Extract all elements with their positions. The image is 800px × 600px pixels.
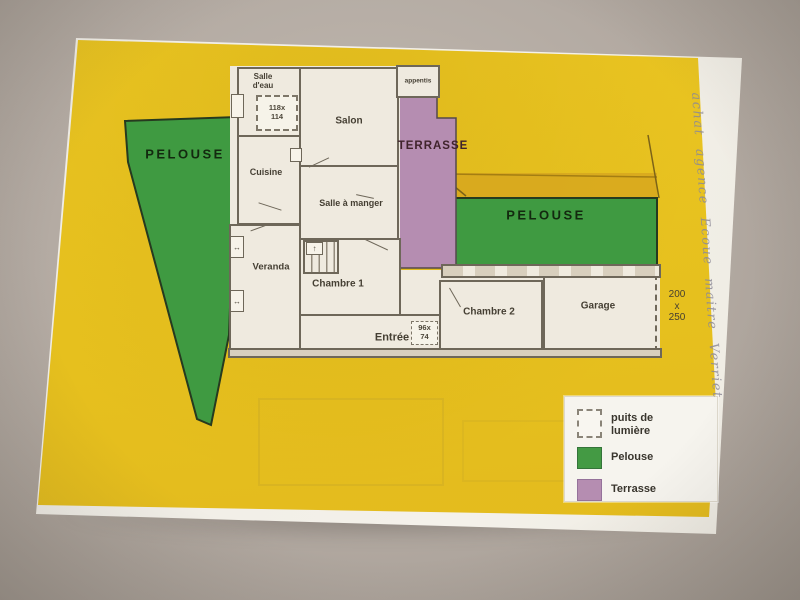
room-garage [543,274,657,352]
entree-dimensions: 96x 74 [418,324,431,341]
puits-de-lumiere-box: 118x 114 [256,95,298,131]
stone-wall-band [441,264,661,278]
terrasse-shape [398,96,456,268]
legend: puits de lumière Pelouse Terrasse [564,396,718,502]
photo-of-floor-plan: ↑ ↔ ↔ 118x 114 96x 74 200 x 250 Salle d'… [0,0,800,600]
legend-swatch-terrasse [577,479,602,501]
flue-box [290,148,302,162]
legend-label-pelouse: Pelouse [611,451,653,464]
label-cuisine: Cuisine [250,167,283,177]
label-veranda: Veranda [253,263,290,274]
label-salon: Salon [335,115,362,127]
bleedthrough-lines [258,398,444,486]
window-arrow-icon: ↔ [233,297,241,306]
label-pelouse-left: PELOUSE [145,147,225,162]
label-terrasse: TERRASSE [398,140,469,152]
chimney-box [231,94,244,118]
label-chambre-1: Chambre 1 [312,278,364,290]
veranda-window-icon: ↔ [230,236,244,258]
legend-swatch-puits [577,409,602,438]
label-entree: Entrée [375,332,409,345]
window-arrow-icon: ↔ [233,243,241,252]
pelouse-left-shape [125,117,237,425]
bottom-wall [228,348,662,358]
label-appentis: appentis [405,77,432,84]
label-chambre-2: Chambre 2 [463,306,515,318]
label-pelouse-right: PELOUSE [506,208,586,223]
label-salle-a-manger: Salle à manger [319,198,383,208]
label-garage: Garage [581,300,615,312]
veranda-window-icon: ↔ [230,290,244,312]
label-salle-deau: Salle d'eau [253,72,274,90]
stairs-up-arrow-icon: ↑ [313,244,317,253]
garage-dimensions: 200 x 250 [669,289,686,324]
legend-label-terrasse: Terrasse [611,483,656,496]
entree-dimension-box: 96x 74 [411,321,438,345]
stairs-arrow-box: ↑ [306,242,323,255]
legend-swatch-pelouse [577,447,602,469]
puits-dimensions: 118x 114 [269,104,285,121]
legend-label-puits: puits de lumière [611,412,653,438]
